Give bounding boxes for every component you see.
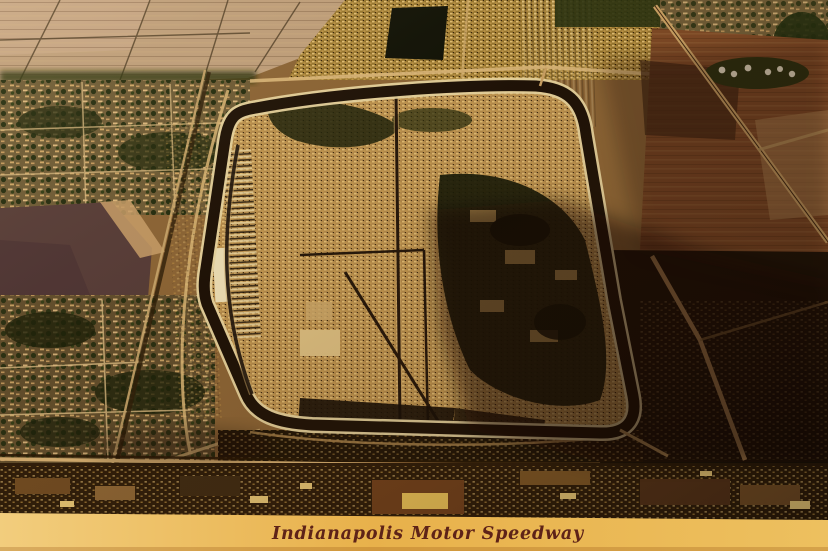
band-bottom-shade (0, 547, 828, 551)
postcard: Indianapolis Motor Speedway (0, 0, 828, 551)
aerial-photo: Indianapolis Motor Speedway (0, 0, 828, 551)
sepia-tone-overlay (0, 0, 828, 522)
caption-text: Indianapolis Motor Speedway (271, 524, 585, 544)
